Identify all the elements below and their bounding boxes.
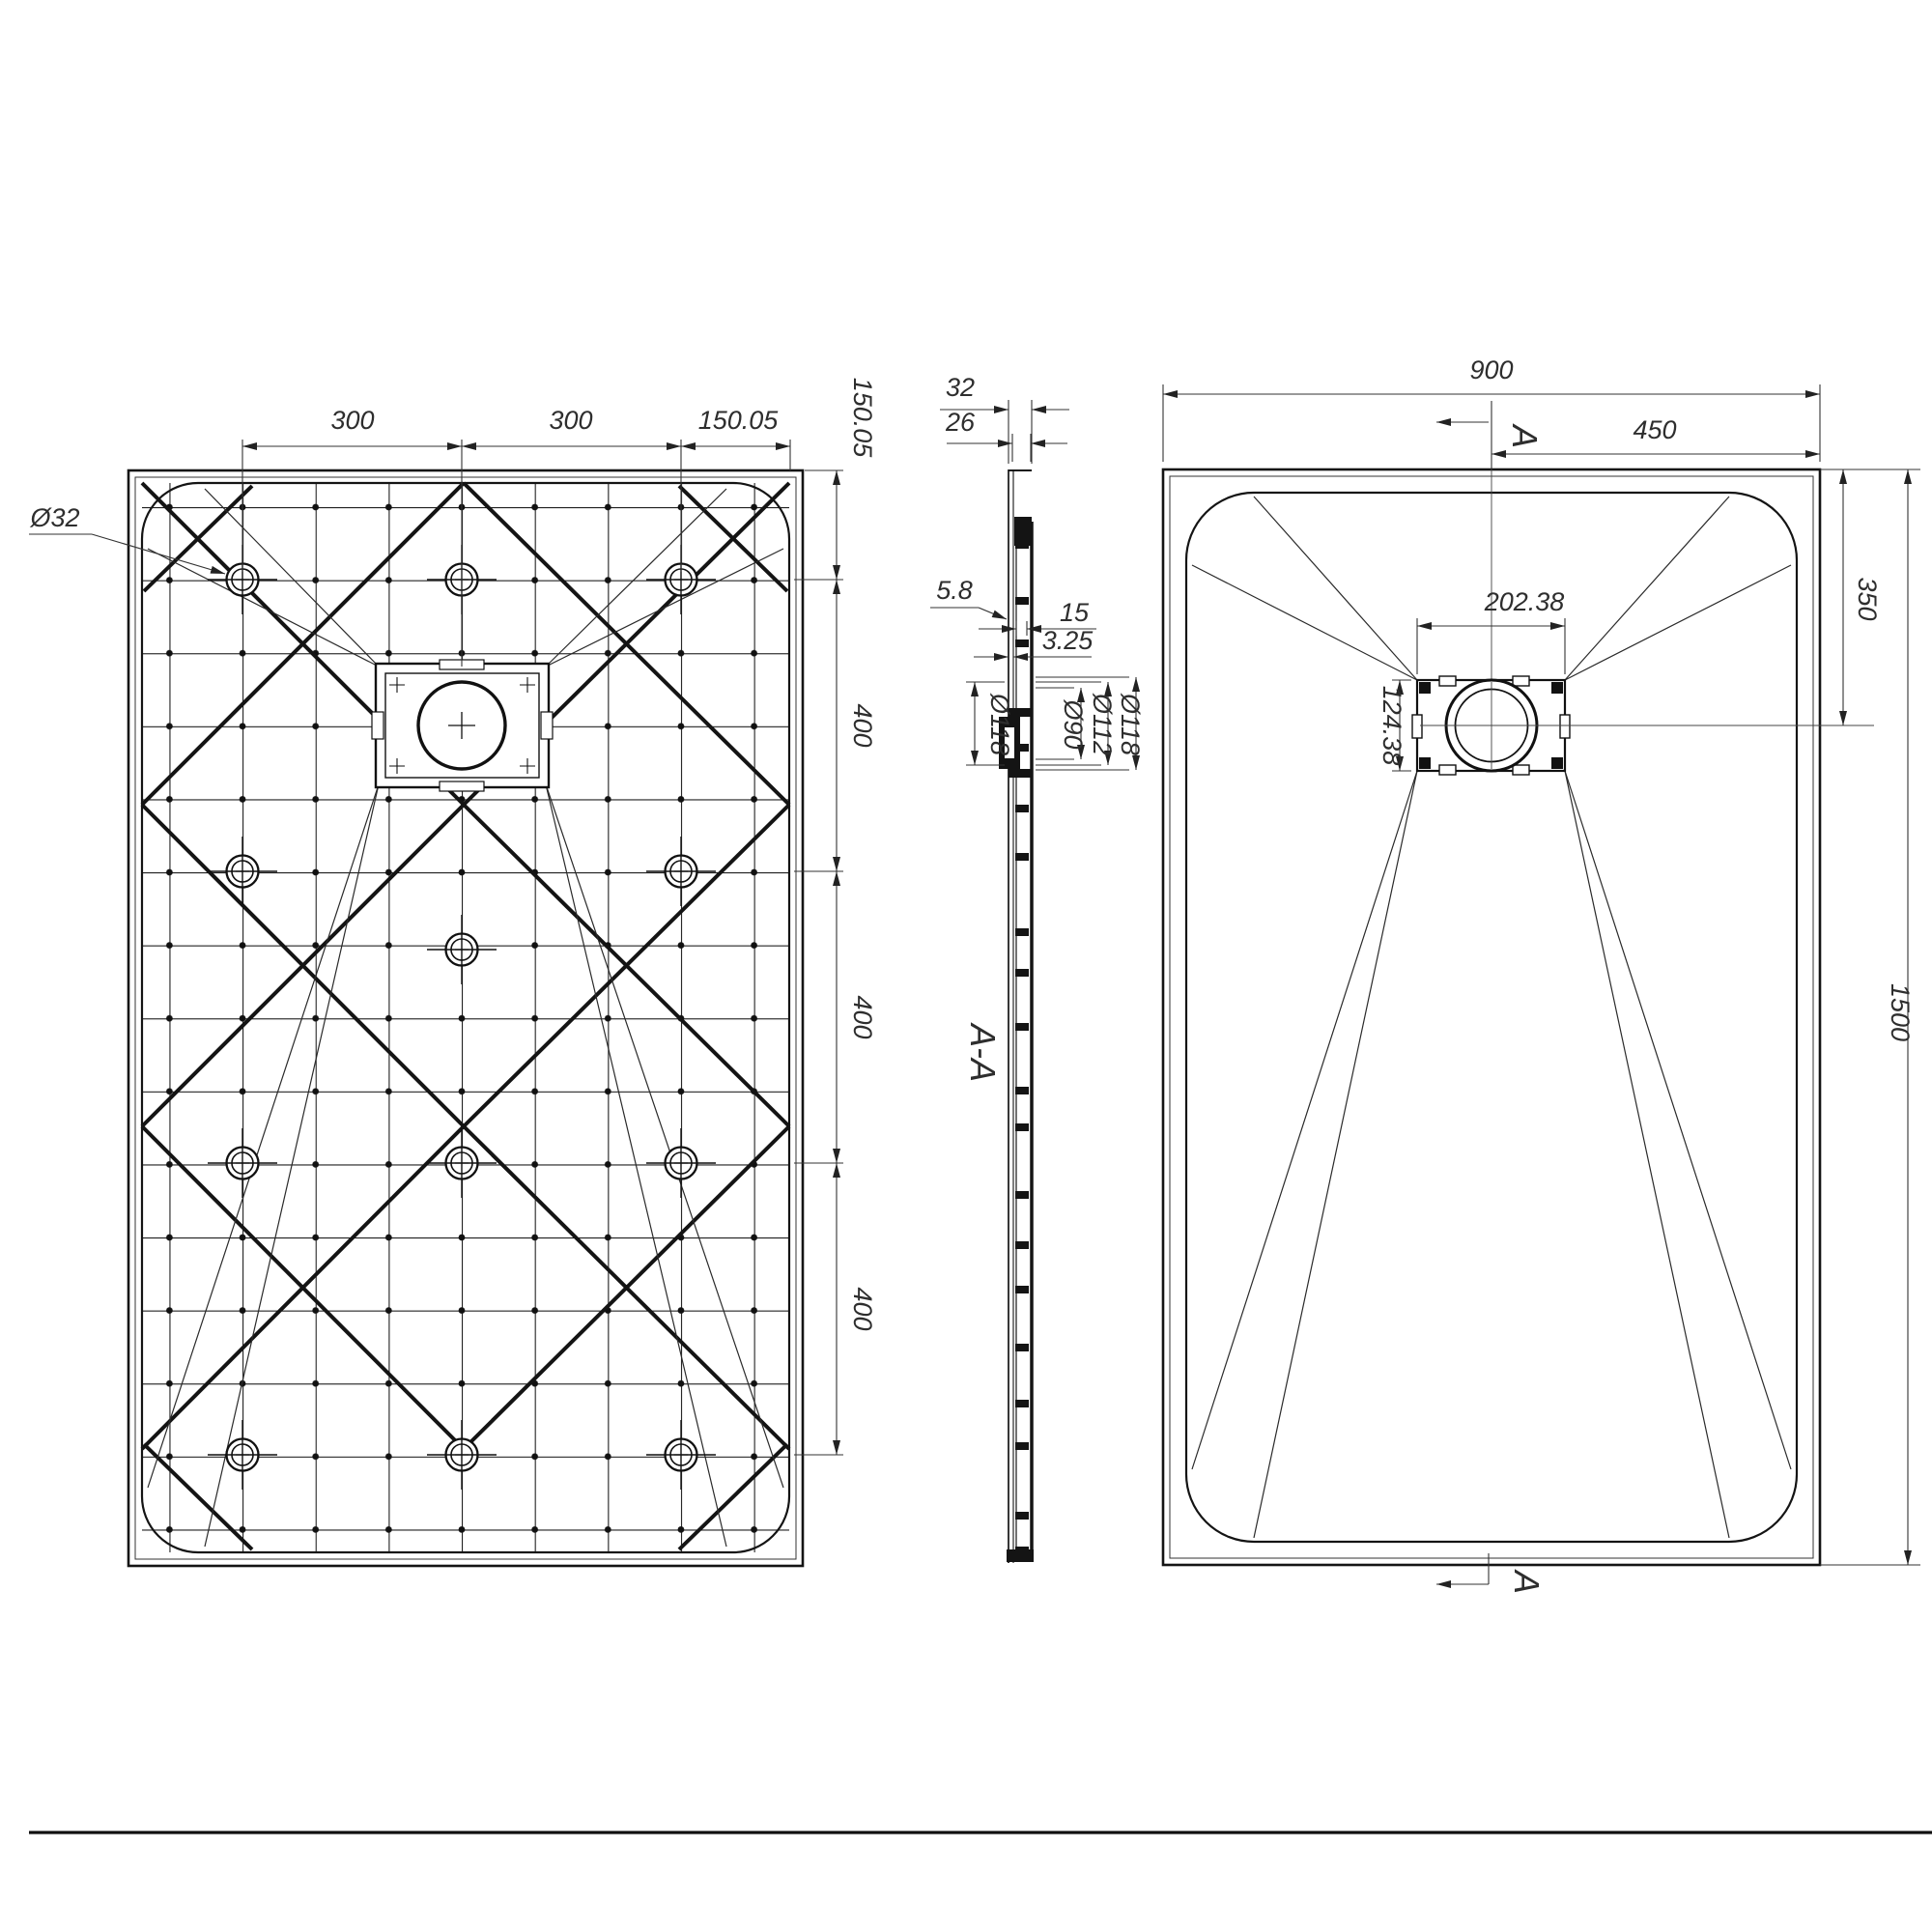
dim-drain-center-x: 450	[1633, 415, 1676, 444]
dim-drain-dia-118-left: Ø118	[985, 693, 1014, 755]
dim-top-height: 1500	[1886, 983, 1915, 1041]
section-marker-bottom: A	[1507, 1569, 1547, 1594]
section-view: 32 26 5.8 15 3.25	[930, 373, 1145, 1563]
drain-recess	[372, 660, 553, 791]
dim-bottom-width-3: 150.05	[698, 406, 780, 435]
bottom-view: 300 300 150.05 150.05 400 400 400	[29, 378, 877, 1566]
dim-drain-rect-width: 202.38	[1484, 587, 1565, 616]
dim-bottom-height-1: 400	[848, 703, 877, 747]
dim-section-wall: 5.8	[936, 576, 973, 605]
dim-section-thickness-1: 32	[946, 373, 975, 402]
section-marker-top: A	[1505, 423, 1545, 448]
dim-drain-dia-90: Ø90	[1059, 698, 1088, 749]
dim-bottom-height-3: 400	[848, 1287, 877, 1330]
dim-drain-rect-height: 124.38	[1378, 686, 1406, 766]
drawing-sheet: 300 300 150.05 150.05 400 400 400	[0, 0, 1932, 1932]
rib-grid	[142, 483, 789, 1552]
dim-bottom-height-0: 150.05	[848, 378, 877, 459]
technical-drawing-canvas: 300 300 150.05 150.05 400 400 400	[0, 0, 1932, 1932]
dim-section-rib: 15	[1060, 598, 1090, 627]
dim-top-width: 900	[1469, 355, 1513, 384]
section-cut-line	[1489, 401, 1492, 1584]
drain-assembly	[1412, 676, 1874, 775]
top-view: 900 450 A A 350 1500 202.38	[1163, 355, 1920, 1594]
dim-boss-diameter: Ø32	[29, 503, 79, 532]
dim-section-sheet: 3.25	[1042, 626, 1094, 655]
dim-drain-dia-118-right: Ø118	[1116, 693, 1145, 755]
dim-bottom-width-1: 300	[330, 406, 374, 435]
dim-drain-center-y: 350	[1853, 577, 1882, 620]
section-view-title: A-A	[963, 1022, 1003, 1082]
dim-bottom-height-2: 400	[848, 995, 877, 1038]
dim-bottom-width-2: 300	[549, 406, 592, 435]
dim-drain-dia-112: Ø112	[1088, 693, 1117, 755]
section-dimensions: 32 26 5.8 15 3.25	[930, 373, 1145, 770]
dim-section-thickness-2: 26	[945, 408, 976, 437]
top-view-dimensions: 900 450 A A 350 1500 202.38	[1163, 355, 1920, 1594]
